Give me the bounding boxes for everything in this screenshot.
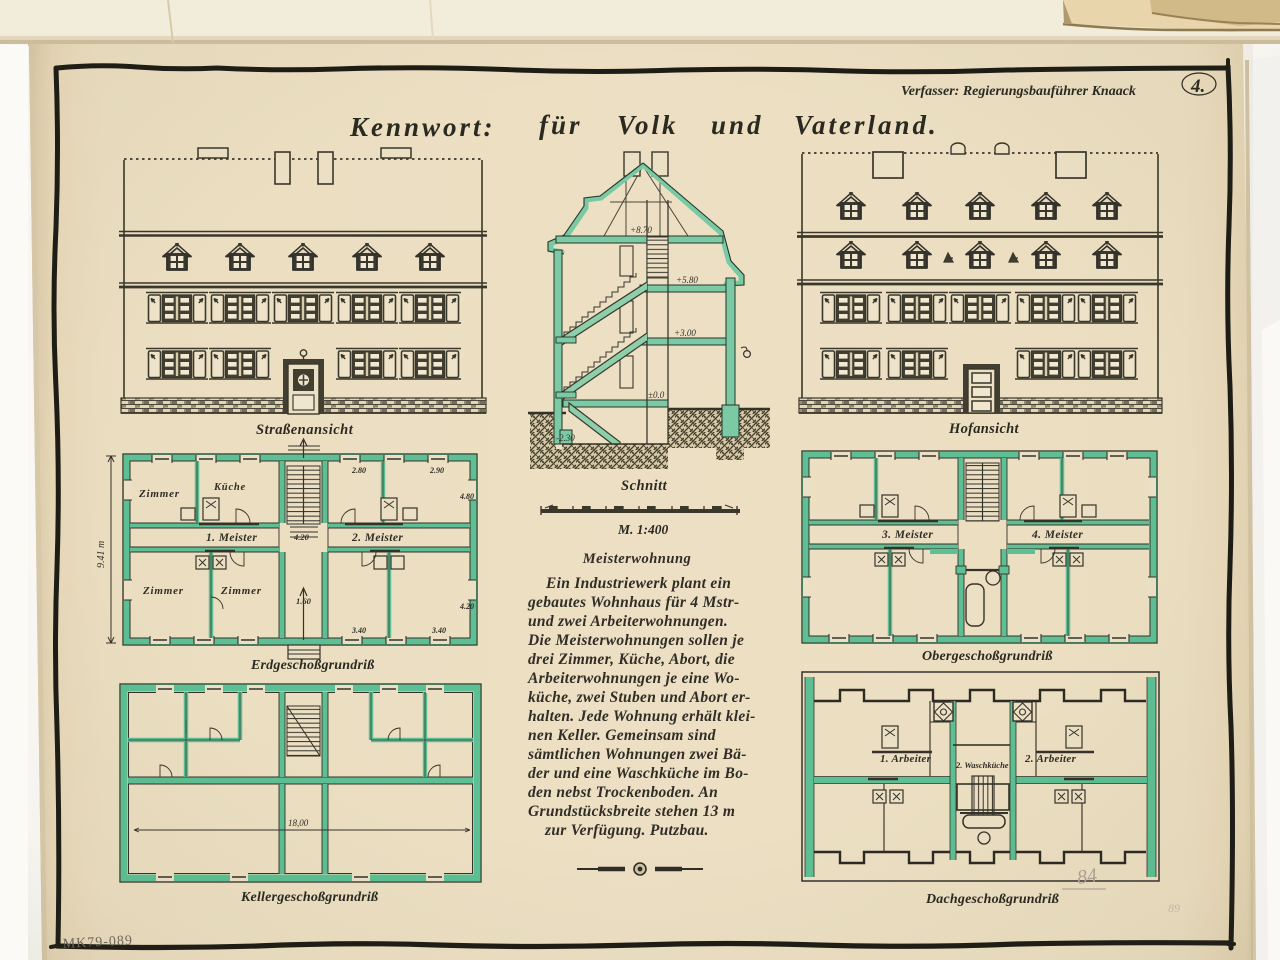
svg-text:89: 89 <box>1168 901 1180 915</box>
svg-text:84: 84 <box>1076 864 1099 889</box>
